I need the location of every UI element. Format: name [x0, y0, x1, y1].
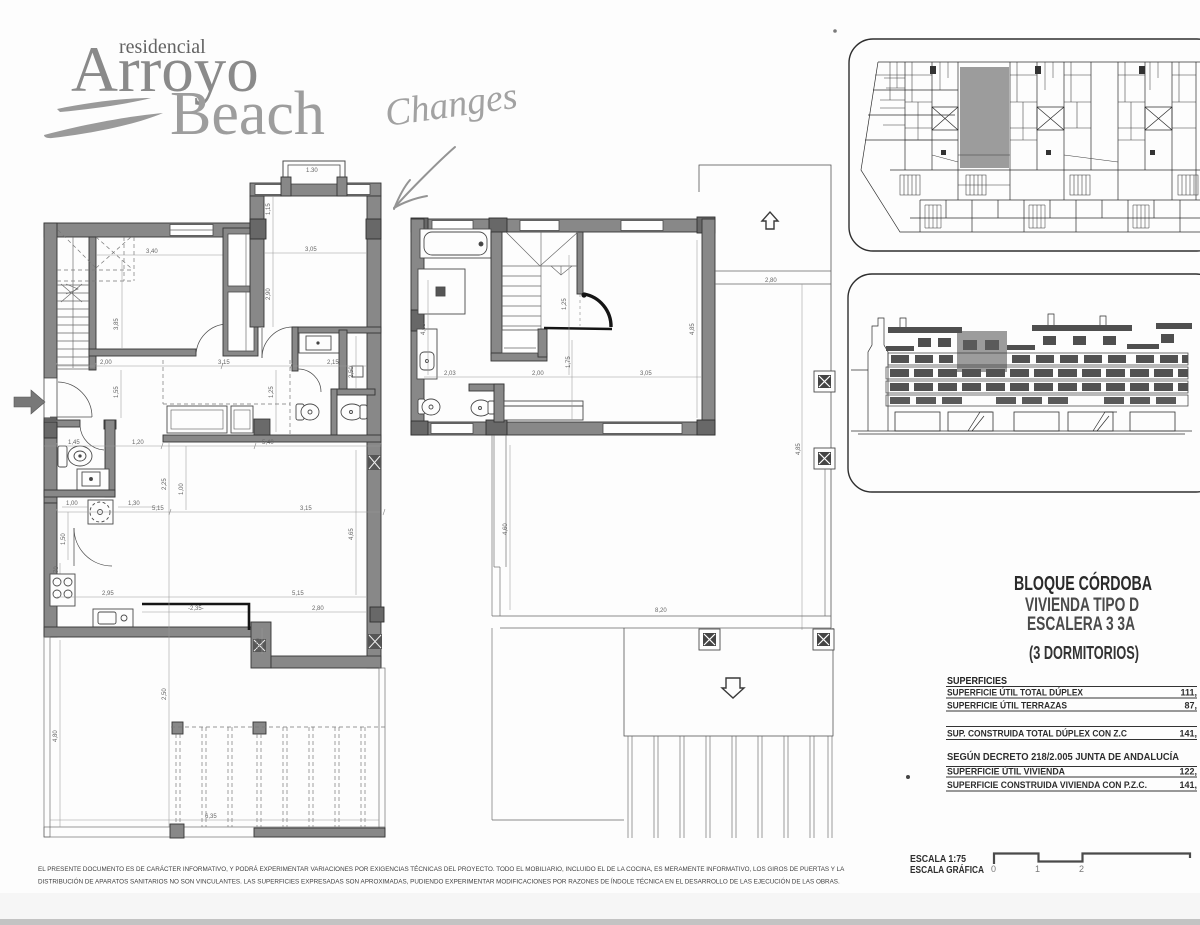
- svg-text:2,50: 2,50: [349, 366, 355, 378]
- svg-text:1.30: 1.30: [306, 168, 318, 174]
- svg-text:ESCALA GRÁFICA: ESCALA GRÁFICA: [910, 863, 984, 876]
- svg-text:4,85: 4,85: [690, 323, 696, 335]
- svg-text:VIVIENDA TIPO D: VIVIENDA TIPO D: [1025, 595, 1139, 616]
- svg-text:1,75: 1,75: [566, 356, 572, 368]
- svg-text:1,50: 1,50: [61, 533, 67, 545]
- svg-text:4,60: 4,60: [503, 523, 509, 535]
- svg-text:2,15: 2,15: [327, 360, 339, 366]
- svg-text:4,65: 4,65: [349, 528, 355, 540]
- svg-text:2,50: 2,50: [162, 688, 168, 700]
- svg-text:1,15: 1,15: [266, 203, 272, 215]
- svg-text:ESCALERA 3 3A: ESCALERA 3 3A: [1027, 614, 1135, 635]
- svg-text:2,00: 2,00: [532, 371, 544, 377]
- svg-text:1,45: 1,45: [68, 440, 80, 446]
- svg-text:3,15: 3,15: [218, 360, 230, 366]
- svg-text:122,: 122,: [1179, 767, 1197, 777]
- svg-text:3,05: 3,05: [640, 371, 652, 377]
- svg-text:1: 1: [1035, 864, 1040, 874]
- svg-text:BLOQUE CÓRDOBA: BLOQUE CÓRDOBA: [1014, 571, 1152, 595]
- svg-text:ESCALA 1:75: ESCALA 1:75: [910, 854, 966, 865]
- svg-text:SUPERFICIE ÚTIL VIVIENDA: SUPERFICIE ÚTIL VIVIENDA: [947, 766, 1065, 777]
- svg-text:2,25: 2,25: [162, 478, 168, 490]
- svg-text:6,35: 6,35: [205, 814, 217, 820]
- svg-text:SUPERFICIE CONSTRUIDA VIVIENDA: SUPERFICIE CONSTRUIDA VIVIENDA CON P.Z.C…: [947, 780, 1147, 790]
- svg-text:-2,35-: -2,35-: [188, 606, 204, 612]
- svg-text:1,25: 1,25: [562, 298, 568, 310]
- svg-text:2,03: 2,03: [444, 371, 456, 377]
- svg-text:2,90: 2,90: [266, 288, 272, 300]
- svg-text:111,: 111,: [1180, 688, 1197, 698]
- svg-text:SUPERFICIES: SUPERFICIES: [947, 675, 1007, 687]
- svg-text:4,80: 4,80: [53, 730, 59, 742]
- svg-text:5,40: 5,40: [262, 440, 274, 446]
- svg-text:3,05: 3,05: [305, 247, 317, 253]
- svg-text:1,00: 1,00: [179, 483, 185, 495]
- svg-text:1,55: 1,55: [114, 386, 120, 398]
- svg-text:87,: 87,: [1184, 701, 1197, 711]
- svg-text:1,20: 1,20: [132, 440, 144, 446]
- svg-text:2,80: 2,80: [312, 606, 324, 612]
- svg-text:141,: 141,: [1179, 729, 1197, 739]
- svg-text:0,90: 0,90: [256, 638, 262, 650]
- svg-text:SUPERFICIE ÚTIL TERRAZAS: SUPERFICIE ÚTIL TERRAZAS: [947, 700, 1067, 711]
- svg-text:1,30: 1,30: [128, 501, 140, 507]
- svg-text:(3 DORMITORIOS): (3 DORMITORIOS): [1029, 642, 1139, 663]
- svg-text:2,80: 2,80: [765, 278, 777, 284]
- svg-text:Beach: Beach: [170, 80, 325, 148]
- svg-text:2,95: 2,95: [102, 591, 114, 597]
- svg-text:2: 2: [1079, 864, 1084, 874]
- svg-text:0: 0: [991, 864, 996, 874]
- svg-text:DISTRIBUCIÓN DE APARATOS SANIT: DISTRIBUCIÓN DE APARATOS SANITARIOS NO S…: [38, 877, 840, 886]
- svg-text:SUP. CONSTRUIDA TOTAL DÚPLEX C: SUP. CONSTRUIDA TOTAL DÚPLEX CON Z.C: [947, 728, 1127, 739]
- svg-text:5,15: 5,15: [292, 591, 304, 597]
- svg-text:3,40: 3,40: [146, 249, 158, 255]
- svg-text:141,: 141,: [1179, 780, 1197, 790]
- svg-text:4,85: 4,85: [796, 443, 802, 455]
- svg-text:4,65: 4,65: [421, 323, 427, 335]
- svg-text:3,15: 3,15: [300, 506, 312, 512]
- svg-text:8,20: 8,20: [655, 608, 667, 614]
- svg-text:SUPERFICIE ÚTIL TOTAL DÚPLEX: SUPERFICIE ÚTIL TOTAL DÚPLEX: [947, 687, 1083, 698]
- svg-text:1,25: 1,25: [269, 386, 275, 398]
- svg-text:SEGÚN DECRETO 218/2.005 JUNTA: SEGÚN DECRETO 218/2.005 JUNTA DE ANDALUC…: [947, 750, 1179, 763]
- svg-text:5,15: 5,15: [152, 506, 164, 512]
- svg-text:3,85: 3,85: [114, 318, 120, 330]
- svg-text:1,00: 1,00: [66, 501, 78, 507]
- svg-text:2,00: 2,00: [100, 360, 112, 366]
- svg-text:EL PRESENTE DOCUMENTO ES DE CA: EL PRESENTE DOCUMENTO ES DE CARÁCTER INF…: [38, 864, 845, 873]
